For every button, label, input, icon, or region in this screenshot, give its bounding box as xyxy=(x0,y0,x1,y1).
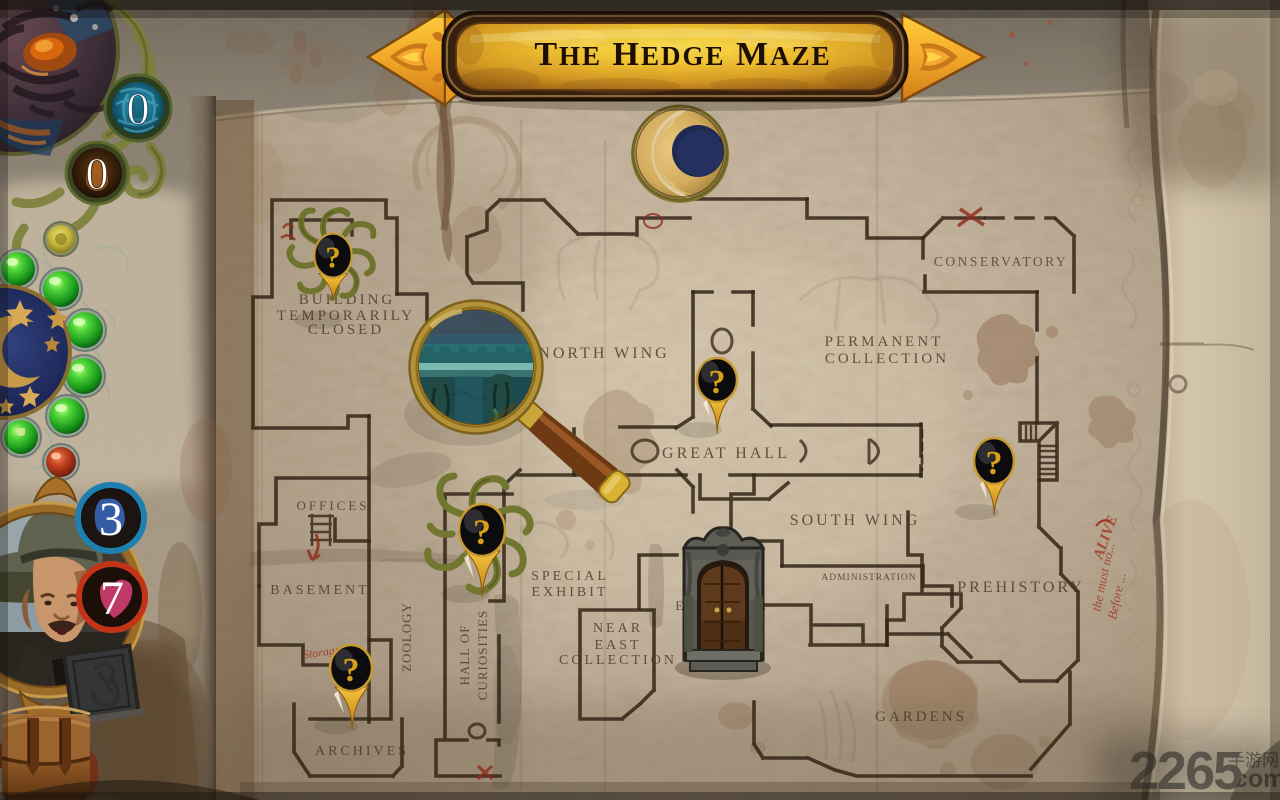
svg-text:PERMANENT: PERMANENT xyxy=(825,334,944,350)
svg-text:HALL OF: HALL OF xyxy=(457,624,472,685)
svg-text:NEAR: NEAR xyxy=(593,621,643,636)
svg-text:7: 7 xyxy=(100,572,124,625)
svg-text:EAST: EAST xyxy=(595,638,642,653)
svg-text:ADMINISTRATION: ADMINISTRATION xyxy=(821,573,916,583)
svg-text:0: 0 xyxy=(127,83,150,134)
svg-text:2265: 2265 xyxy=(1129,741,1242,800)
svg-text:?: ? xyxy=(325,240,340,274)
svg-text:OFFICES: OFFICES xyxy=(296,498,369,513)
svg-text:NORTH WING: NORTH WING xyxy=(538,345,669,362)
svg-text:THE HEDGE MAZE: THE HEDGE MAZE xyxy=(534,36,831,73)
svg-text:?: ? xyxy=(709,364,726,401)
svg-text:0: 0 xyxy=(86,148,109,199)
svg-text:CURIOSITIES: CURIOSITIES xyxy=(475,610,490,700)
svg-text:3: 3 xyxy=(99,493,123,546)
svg-text:?: ? xyxy=(343,652,360,689)
svg-text:SPECIAL: SPECIAL xyxy=(531,569,609,584)
svg-text:COLLECTION: COLLECTION xyxy=(559,653,677,668)
svg-text:ARCHIVES: ARCHIVES xyxy=(315,744,409,759)
svg-text:GREAT HALL: GREAT HALL xyxy=(662,445,790,462)
svg-text:BASEMENT: BASEMENT xyxy=(270,583,369,598)
svg-text:GARDENS: GARDENS xyxy=(875,709,967,725)
svg-text:EXHIBIT: EXHIBIT xyxy=(532,585,609,600)
svg-text:?: ? xyxy=(986,445,1003,482)
svg-text:CONSERVATORY: CONSERVATORY xyxy=(934,254,1068,269)
svg-text:?: ? xyxy=(473,512,491,552)
svg-text:COLLECTION: COLLECTION xyxy=(825,351,949,367)
svg-text:PREHISTORY: PREHISTORY xyxy=(957,579,1085,596)
svg-text:SOUTH WING: SOUTH WING xyxy=(790,512,921,529)
svg-text:ZOOLOGY: ZOOLOGY xyxy=(399,602,414,672)
